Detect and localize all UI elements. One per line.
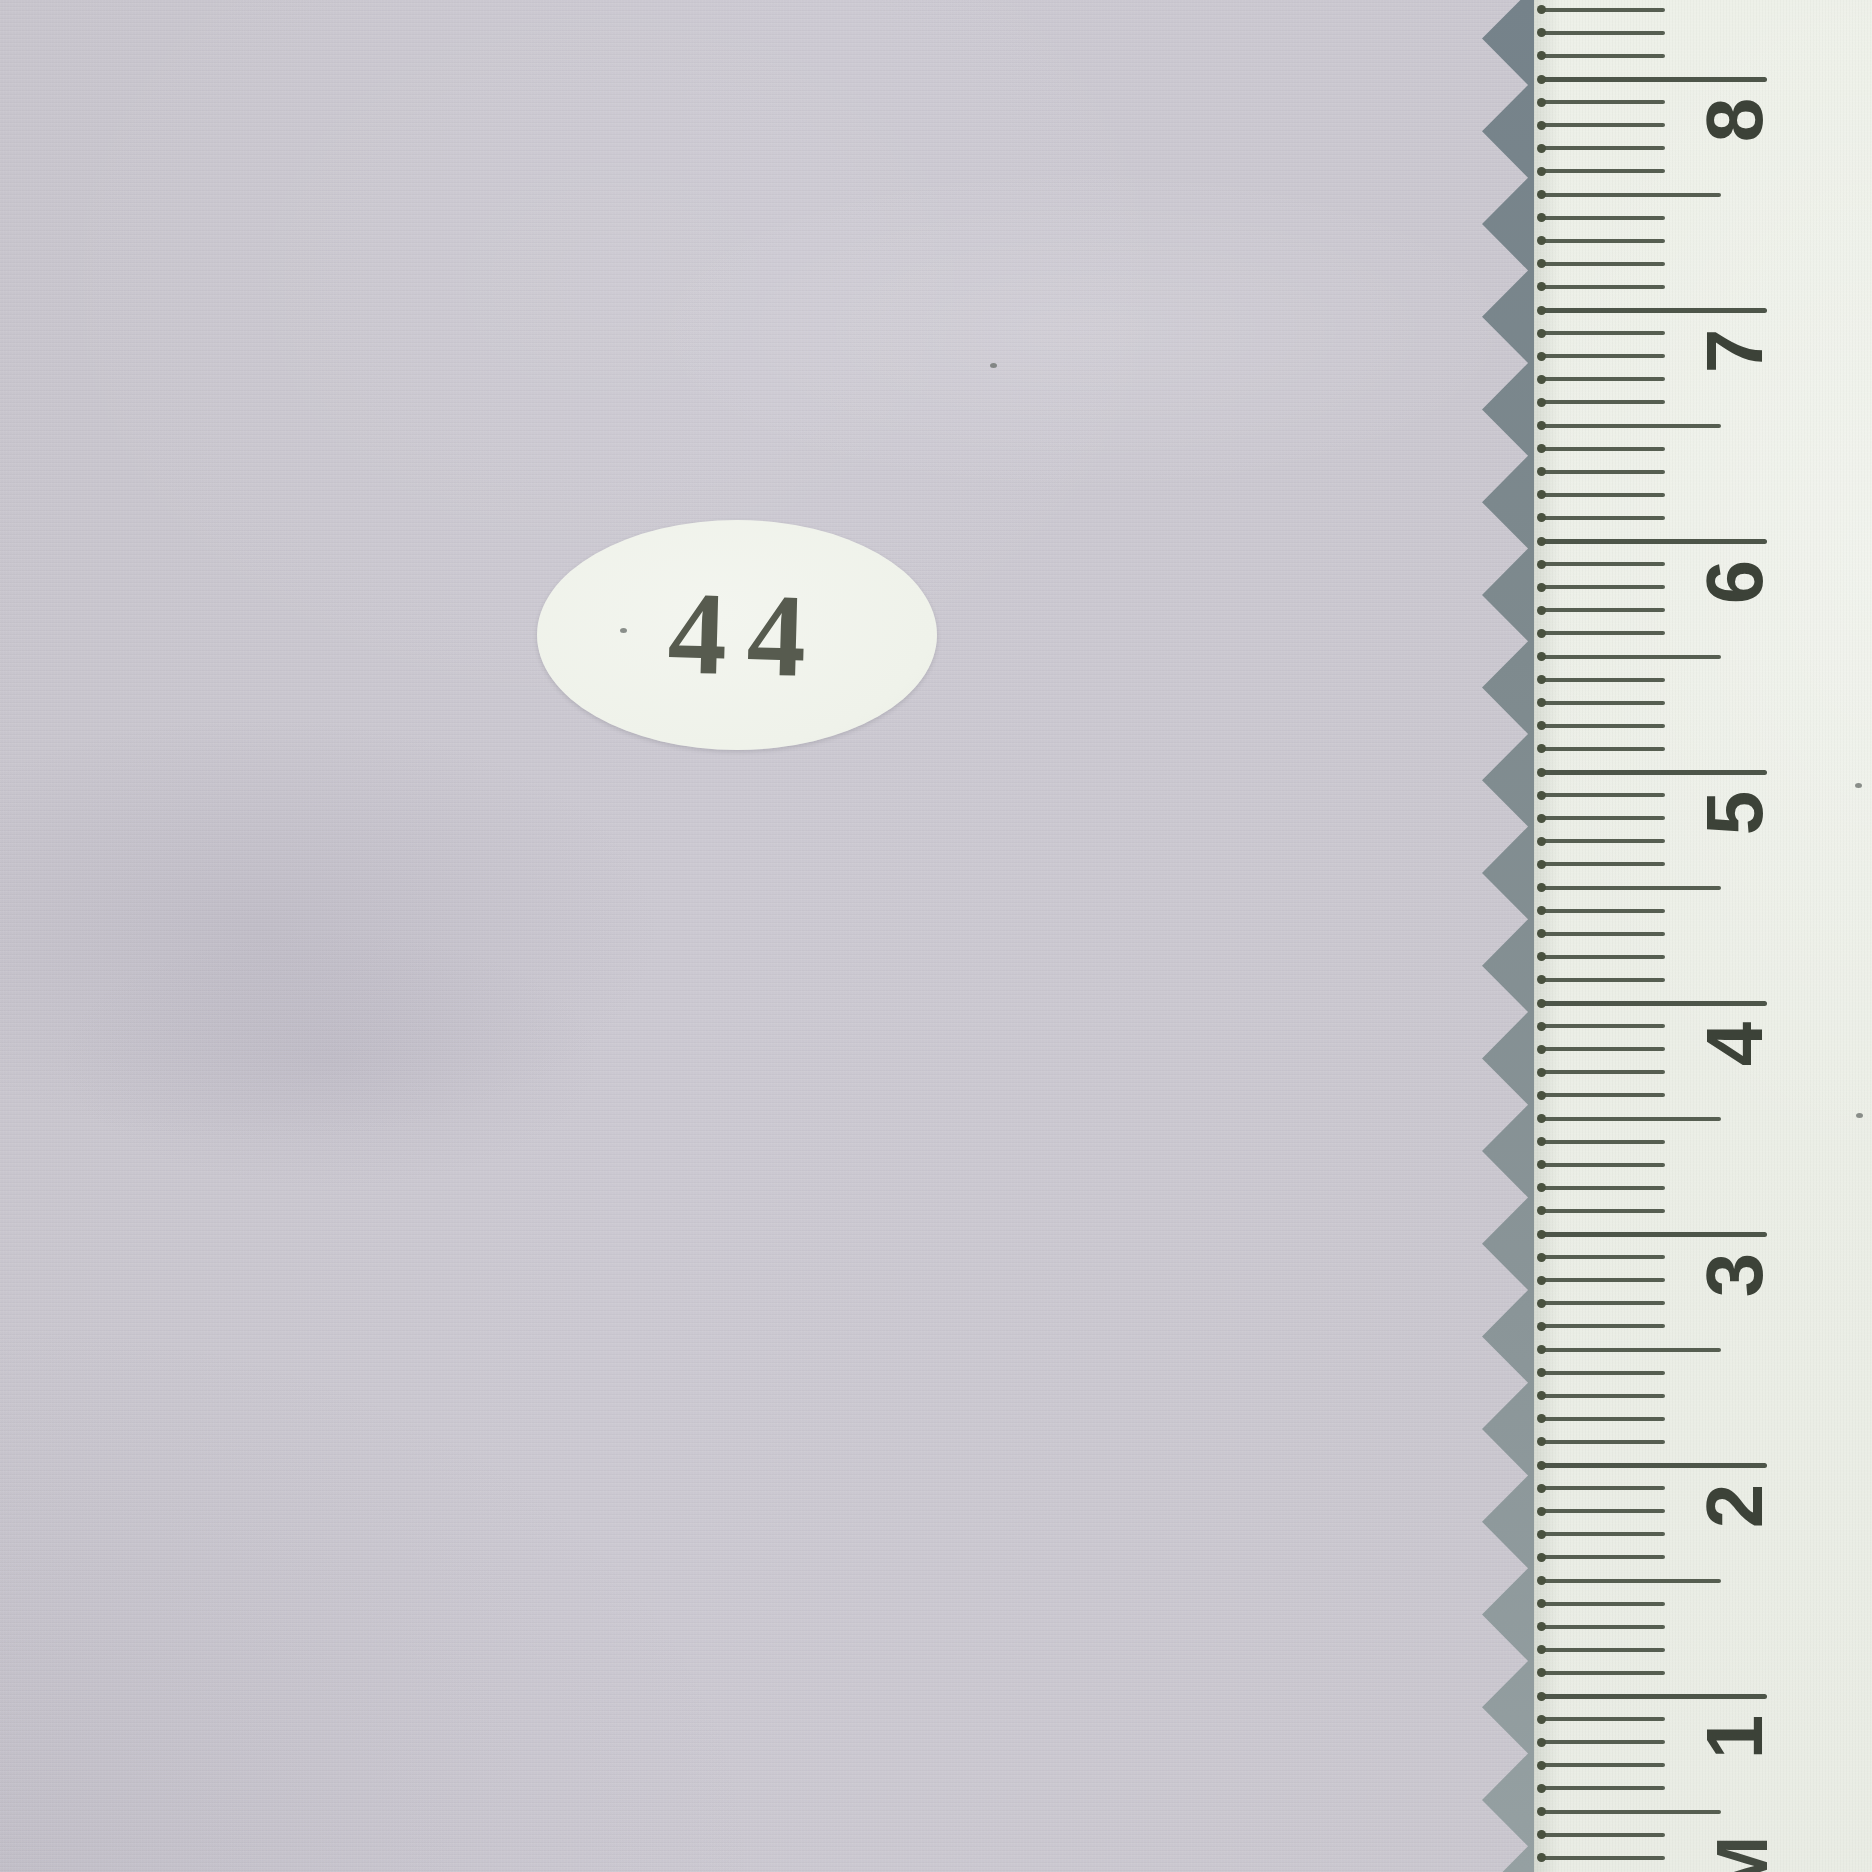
ruler-half-tick (1541, 886, 1721, 890)
ruler-minor-tick (1541, 516, 1665, 520)
ruler-half-tick (1541, 1348, 1721, 1352)
ruler-minor-tick (1541, 1070, 1665, 1074)
fiber-speck (1855, 783, 1862, 788)
ruler-unit-tick (1541, 77, 1767, 82)
ruler-minor-tick (1541, 1648, 1665, 1652)
ruler-unit-tick (1541, 770, 1767, 775)
ruler-minor-tick (1541, 470, 1665, 474)
ruler-minor-tick (1541, 493, 1665, 497)
ruler-unit-tick (1541, 539, 1767, 544)
ruler-minor-tick (1541, 377, 1665, 381)
ruler-number-7: 7 (1695, 331, 1775, 374)
ruler-unit-tick (1541, 308, 1767, 313)
ruler-minor-tick (1541, 1717, 1665, 1721)
ruler-minor-tick (1541, 1602, 1665, 1606)
ruler-minor-tick (1541, 1278, 1665, 1282)
ruler-minor-tick (1541, 285, 1665, 289)
ruler-minor-tick (1541, 447, 1665, 451)
ruler-minor-tick (1541, 1833, 1665, 1837)
ruler-unit-tick (1541, 1463, 1767, 1468)
ruler-minor-tick (1541, 1047, 1665, 1051)
ruler-minor-tick (1541, 816, 1665, 820)
ruler-minor-tick (1541, 608, 1665, 612)
fiber-speck (1856, 1113, 1863, 1118)
ruler-minor-tick (1541, 562, 1665, 566)
ruler-number-3: 3 (1695, 1255, 1775, 1298)
ruler-minor-tick (1541, 1371, 1665, 1375)
ruler-minor-tick (1541, 216, 1665, 220)
ruler-minor-tick (1541, 862, 1665, 866)
ruler-minor-tick (1541, 1140, 1665, 1144)
ruler-minor-tick (1541, 1671, 1665, 1675)
ruler-half-tick (1541, 424, 1721, 428)
fiber-speck (990, 363, 997, 368)
ruler-minor-tick (1541, 1093, 1665, 1097)
ruler-half-tick (1541, 193, 1721, 197)
ruler-minor-tick (1541, 54, 1665, 58)
ruler-minor-tick (1541, 701, 1665, 705)
swatch-number-sticker: 44 (537, 520, 937, 750)
ruler-minor-tick (1541, 169, 1665, 173)
ruler-minor-tick (1541, 1394, 1665, 1398)
ruler-minor-tick (1541, 932, 1665, 936)
ruler-minor-tick (1541, 123, 1665, 127)
ruler-minor-tick (1541, 1024, 1665, 1028)
ruler-half-tick (1541, 1579, 1721, 1583)
ruler-minor-tick (1541, 793, 1665, 797)
ruler-minor-tick (1541, 146, 1665, 150)
ruler-minor-tick (1541, 678, 1665, 682)
ruler-minor-tick (1541, 1417, 1665, 1421)
ruler-minor-tick (1541, 1209, 1665, 1213)
ruler-minor-tick (1541, 1740, 1665, 1744)
ruler-half-tick (1541, 1117, 1721, 1121)
ruler-minor-tick (1541, 239, 1665, 243)
ruler-number-6: 6 (1695, 562, 1775, 605)
ruler-minor-tick (1541, 100, 1665, 104)
ruler-minor-tick (1541, 747, 1665, 751)
fiber-speck (620, 628, 627, 633)
ruler-minor-tick (1541, 1555, 1665, 1559)
ruler-minor-tick (1541, 1301, 1665, 1305)
ruler-unit-tick (1541, 1001, 1767, 1006)
ruler-minor-tick (1541, 1786, 1665, 1790)
ruler-minor-tick (1541, 1509, 1665, 1513)
ruler-number-1: 1 (1695, 1717, 1775, 1760)
ruler-minor-tick (1541, 1255, 1665, 1259)
ruler-minor-tick (1541, 1440, 1665, 1444)
ruler-minor-tick (1541, 1532, 1665, 1536)
ruler-unit-tick (1541, 1232, 1767, 1237)
ruler-number-2: 2 (1695, 1486, 1775, 1529)
ruler-half-tick (1541, 655, 1721, 659)
ruler-number-5: 5 (1695, 793, 1775, 836)
ruler-number-4: 4 (1695, 1024, 1775, 1067)
ruler-minor-tick (1541, 1763, 1665, 1767)
ruler-minor-tick (1541, 1324, 1665, 1328)
ruler-minor-tick (1541, 8, 1665, 12)
ruler-minor-tick (1541, 724, 1665, 728)
ruler-minor-tick (1541, 978, 1665, 982)
ruler-minor-tick (1541, 31, 1665, 35)
ruler-minor-tick (1541, 839, 1665, 843)
ruler-minor-tick (1541, 631, 1665, 635)
ruler-minor-tick (1541, 1186, 1665, 1190)
sticker-number: 44 (646, 574, 827, 697)
ruler: 87654321M (1534, 0, 1872, 1872)
ruler-half-tick (1541, 1810, 1721, 1814)
ruler-unit-tick (1541, 1694, 1767, 1699)
ruler-minor-tick (1541, 354, 1665, 358)
fabric-swatch (0, 0, 1540, 1872)
ruler-minor-tick (1541, 909, 1665, 913)
ruler-number-8: 8 (1695, 100, 1775, 143)
ruler-minor-tick (1541, 1486, 1665, 1490)
fabric-swatch-photo: 44 87654321M (0, 0, 1872, 1872)
ruler-minor-tick (1541, 331, 1665, 335)
ruler-unit-letter: M (1706, 1836, 1778, 1872)
ruler-minor-tick (1541, 262, 1665, 266)
ruler-minor-tick (1541, 1163, 1665, 1167)
ruler-paper-texture (1534, 0, 1872, 1872)
ruler-minor-tick (1541, 400, 1665, 404)
ruler-minor-tick (1541, 955, 1665, 959)
fabric-weave-texture (0, 0, 1540, 1872)
ruler-minor-tick (1541, 585, 1665, 589)
ruler-minor-tick (1541, 1856, 1665, 1860)
ruler-minor-tick (1541, 1625, 1665, 1629)
